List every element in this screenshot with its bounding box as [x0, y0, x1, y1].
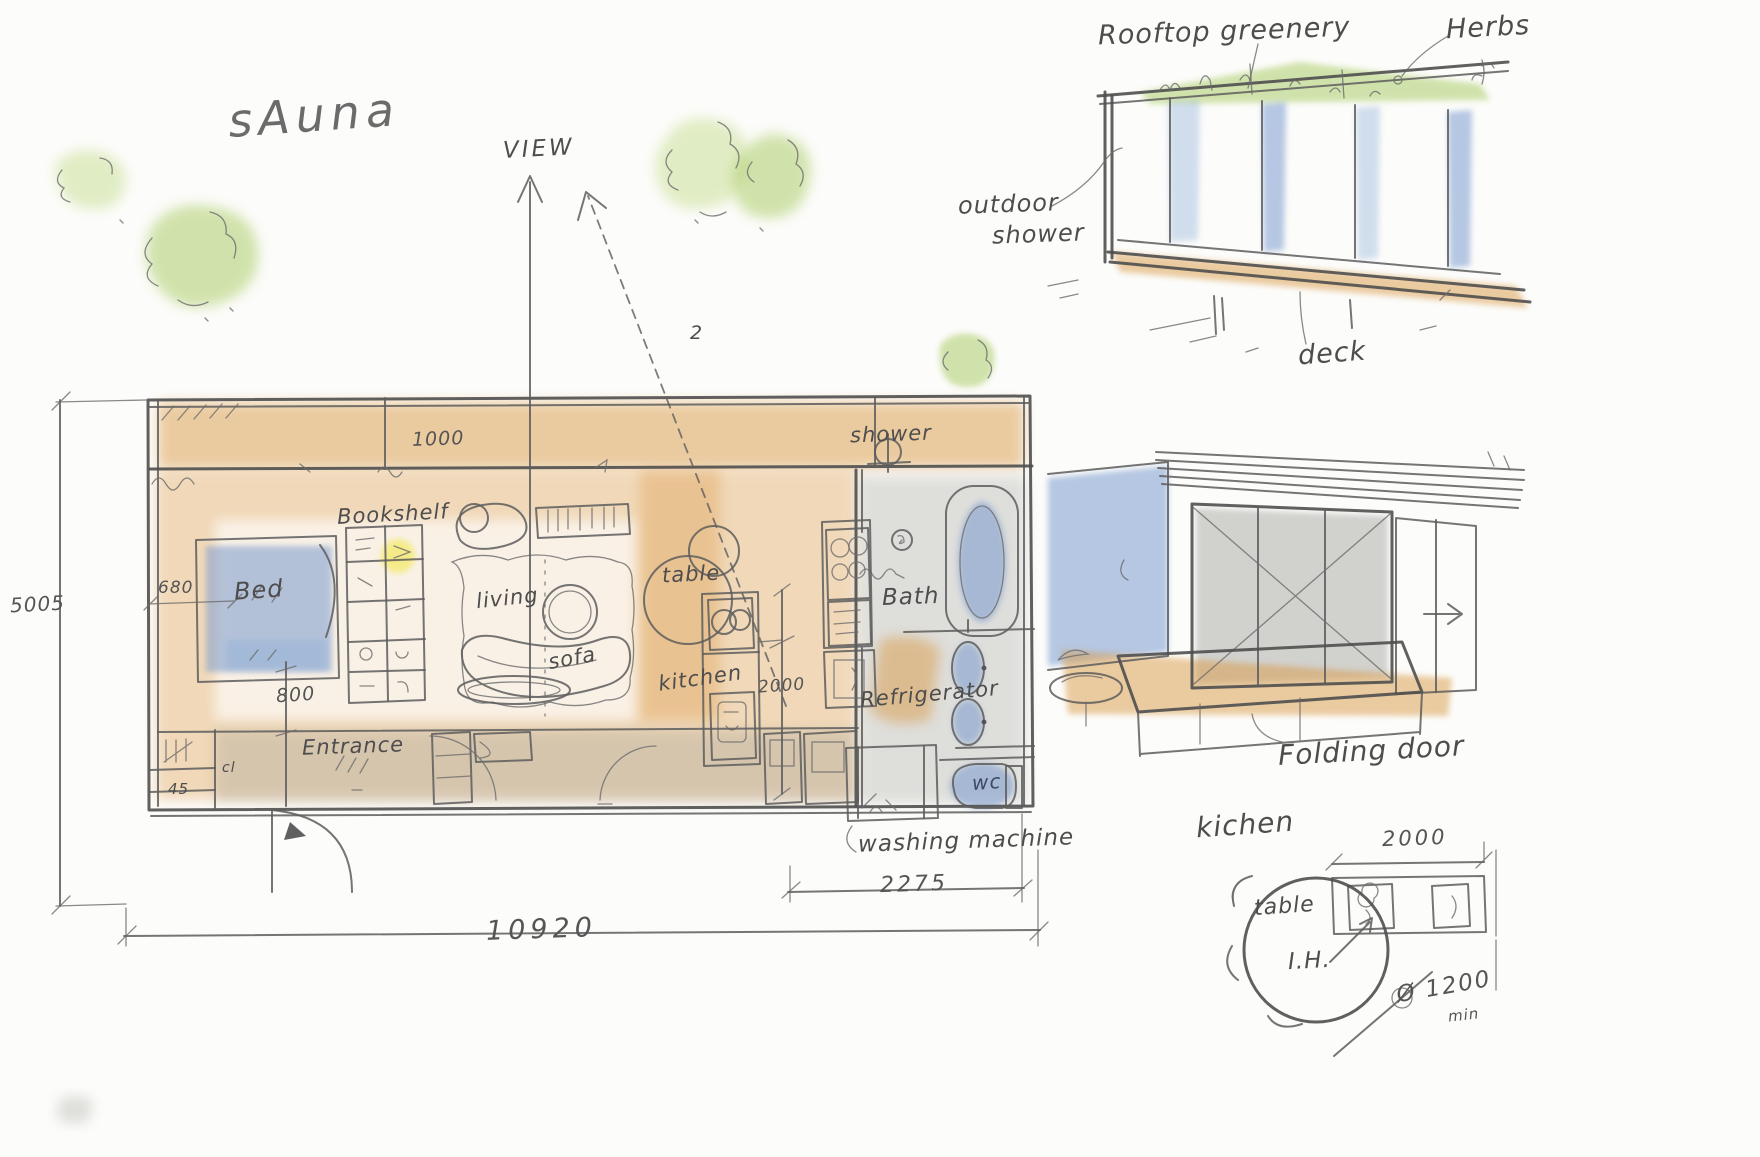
- outdoor-shower-label-line2: shower: [992, 218, 1086, 249]
- deck-label: deck: [1297, 336, 1367, 372]
- bed-label: Bed: [233, 574, 284, 605]
- detail-table-label: table: [1253, 892, 1315, 921]
- dim-kitchen: 2000: [757, 674, 806, 697]
- kitchen-detail-dim: 2000: [1382, 825, 1448, 851]
- dim-bed-side: 680: [158, 578, 193, 598]
- outdoor-shower-label-line1: outdoor: [958, 188, 1060, 220]
- corner-label: 45: [168, 780, 189, 798]
- bath-label: Bath: [882, 583, 940, 611]
- dim-bath: 2275: [880, 871, 949, 898]
- dim-top: 1000: [412, 427, 465, 451]
- view-number: 2: [690, 322, 703, 344]
- view-label: VIEW: [502, 134, 575, 164]
- dim-left: 5005: [9, 591, 65, 618]
- min-label: min: [1447, 1004, 1480, 1025]
- building-sketch: [1048, 36, 1530, 352]
- shower-label: shower: [850, 421, 933, 448]
- wc-label: wc: [971, 769, 1002, 795]
- closet-label: cl: [222, 760, 236, 776]
- kitchen-detail-label: kichen: [1195, 805, 1295, 845]
- interior-sketch: [1048, 452, 1524, 756]
- entrance-label: Entrance: [302, 732, 405, 760]
- herbs-label: Herbs: [1445, 10, 1531, 45]
- dim-total: 10920: [485, 912, 597, 947]
- ih-label: I.H.: [1287, 947, 1331, 975]
- sketch-canvas: sAuna VIEW 2 Rooftop greenery Herbs outd…: [0, 0, 1760, 1157]
- dim-bed-bottom: 800: [275, 683, 316, 708]
- table-label: table: [661, 560, 720, 587]
